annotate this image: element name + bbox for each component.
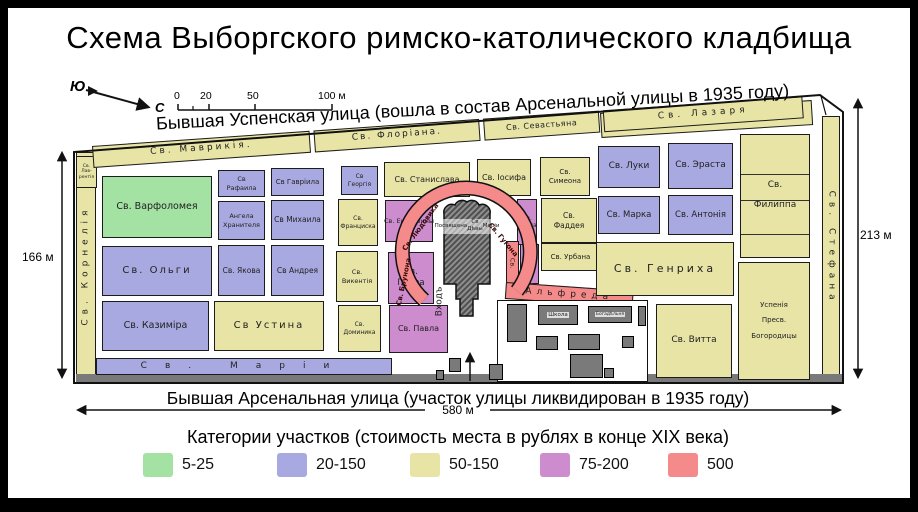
legend-range-label: 20-150 [316, 456, 366, 474]
legend-swatch-green [143, 453, 173, 477]
page-frame: Схема Выборгского римско-католического к… [0, 0, 918, 512]
scale-tick-2: 50 [247, 90, 259, 102]
arc-label-brunona: Св. Брунона [394, 253, 414, 311]
legend-item-green: 5-25 [143, 453, 214, 477]
legend-item-red: 500 [668, 453, 734, 477]
legend-item-purple: 75-200 [540, 453, 629, 477]
legend-range-label: 500 [707, 456, 734, 474]
legend-swatch-yellow [410, 453, 440, 477]
entrance-label: Входъ [435, 273, 446, 329]
scale-tick-3: 100 м [318, 90, 346, 102]
legend-swatch-red [668, 453, 698, 477]
measure-right-label: 213 м [860, 228, 892, 242]
scale-tick-1: 20 [200, 90, 212, 102]
legend-range-label: 50-150 [449, 456, 499, 474]
arc-label-gugona: Св. Гугона [480, 213, 526, 266]
legend-swatch-purple [540, 453, 570, 477]
legend-item-blue: 20-150 [277, 453, 366, 477]
measure-bottom-label: 580 м [430, 403, 486, 417]
legend-range-label: 75-200 [579, 456, 629, 474]
scale-tick-0: 0 [174, 90, 180, 102]
compass-south-label: Ю [70, 78, 86, 95]
measure-left-label: 166 м [22, 250, 54, 264]
legend-title: Категории участков (стоимость места в ру… [74, 427, 842, 448]
legend-item-yellow: 50-150 [410, 453, 499, 477]
compass-north-label: С [155, 100, 164, 115]
legend-range-label: 5-25 [182, 456, 214, 474]
street-label-top: Бывшая Успенская улица (вошла в состав А… [147, 80, 797, 135]
legend-swatch-blue [277, 453, 307, 477]
labels-layer: Бывшая Успенская улица (вошла в состав А… [0, 0, 918, 512]
